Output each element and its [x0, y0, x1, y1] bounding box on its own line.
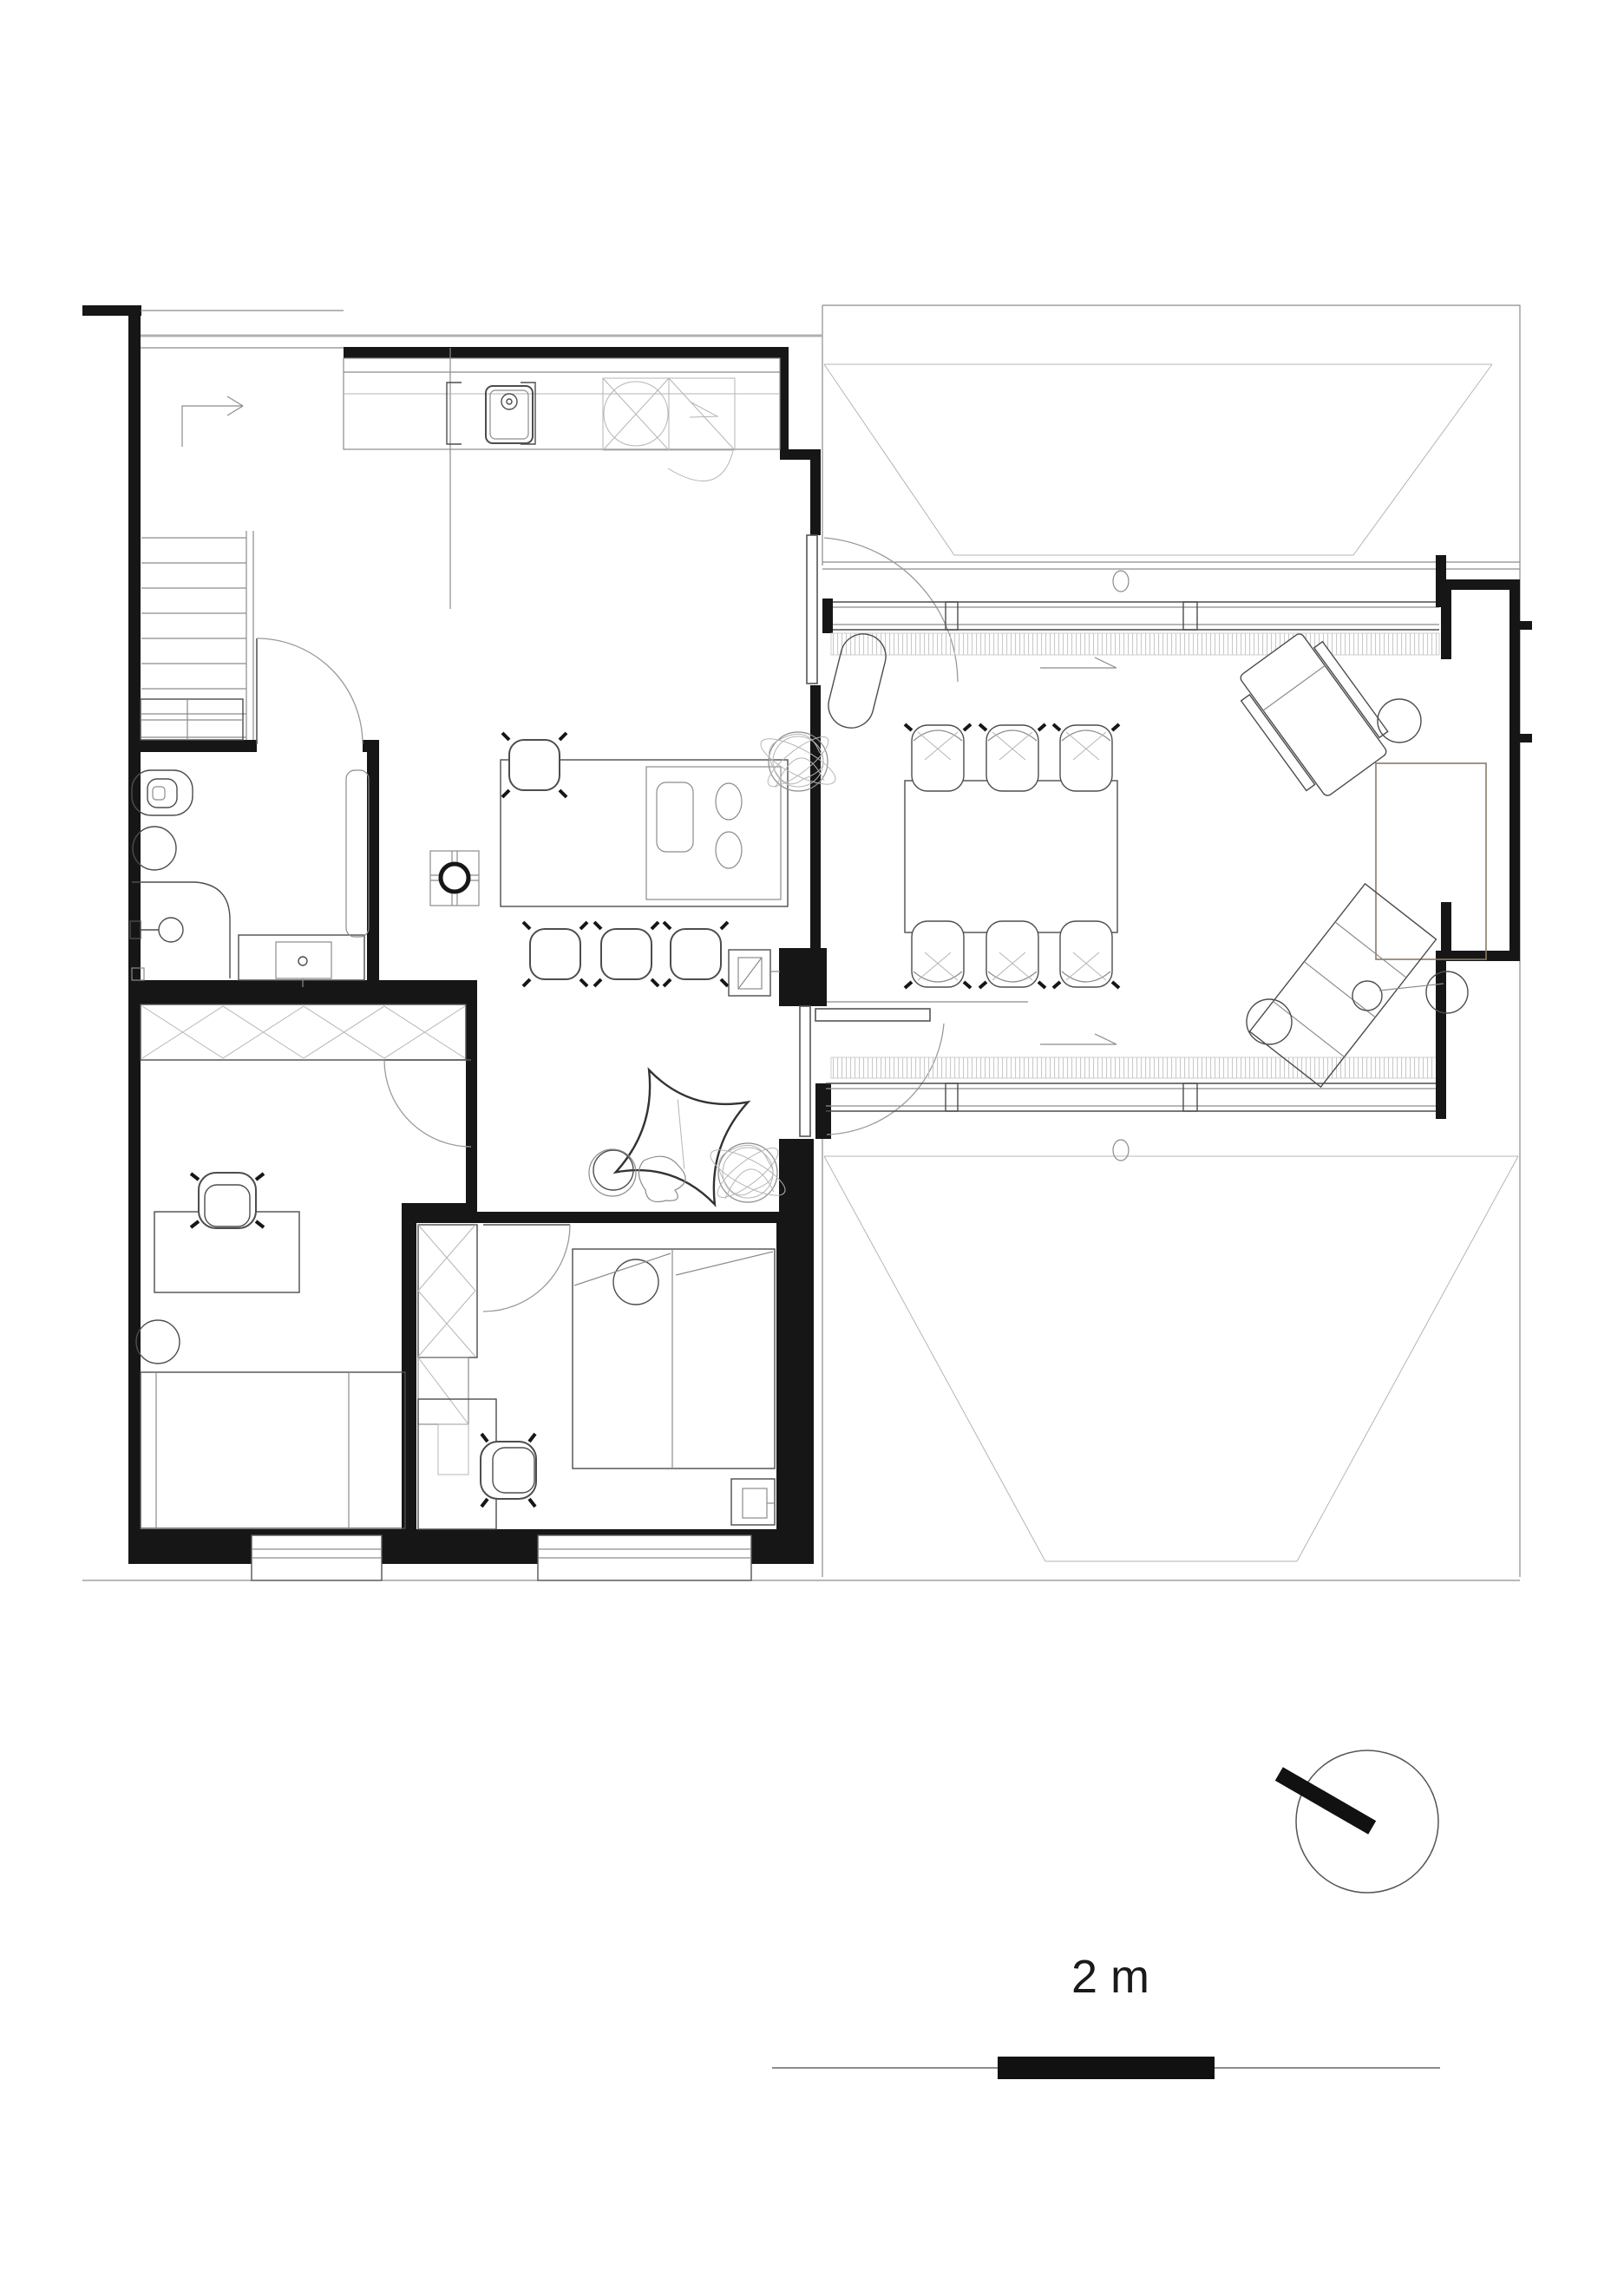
- cooktop-panel: [646, 767, 781, 899]
- vanity: [239, 935, 364, 987]
- floor-plan-drawing: [0, 0, 1624, 2296]
- nightstand: [731, 1479, 775, 1525]
- dining-room: [822, 555, 1532, 1119]
- wall-spine-mid: [810, 685, 821, 948]
- bar-stool: [523, 922, 587, 986]
- wall-spine-upper: [780, 354, 789, 460]
- dining-chair: [1053, 921, 1119, 988]
- wall-bed1-east: [466, 992, 477, 1214]
- bedroom-1: [136, 1004, 471, 1528]
- plant: [756, 729, 841, 793]
- deck-strip-north: [831, 633, 1439, 655]
- kitchen-sink: [447, 383, 535, 444]
- bed-double: [573, 1249, 775, 1469]
- burner: [716, 832, 742, 868]
- dining-chair: [905, 921, 971, 988]
- wardrobe: [141, 1004, 466, 1060]
- terrace-door-jamb: [810, 460, 821, 535]
- armchair: [616, 1070, 748, 1204]
- burner: [716, 783, 742, 820]
- floor-drain: [1113, 571, 1129, 592]
- dining-chair: [979, 921, 1045, 988]
- window-bedroom1: [252, 1535, 382, 1580]
- bathroom: [130, 638, 369, 987]
- side-table: [1426, 971, 1468, 1013]
- faucet: [501, 394, 517, 409]
- plant: [705, 1141, 791, 1204]
- floor-lamp: [1352, 981, 1444, 1011]
- wall-bath-north: [128, 740, 257, 752]
- toilet: [132, 770, 193, 815]
- scale-bar: [772, 2057, 1440, 2079]
- dining-table: [905, 781, 1117, 932]
- bathroom-door: [257, 638, 363, 744]
- stair-direction-arrow: [182, 396, 243, 447]
- window-bedroom2: [538, 1535, 751, 1580]
- door-bedroom1: [384, 1060, 471, 1147]
- bar-stool: [502, 733, 566, 797]
- wall-bed1-bed2: [402, 1203, 416, 1529]
- sideboard: [1376, 763, 1486, 959]
- wall-east-bed2: [776, 1212, 814, 1535]
- desk-chair: [481, 1434, 536, 1507]
- slide-arrow: [1040, 1034, 1116, 1044]
- planter: [589, 1149, 636, 1196]
- wardrobe: [418, 1225, 477, 1475]
- kitchen: [344, 358, 788, 986]
- shower: [130, 882, 230, 980]
- door-bedroom2: [483, 1225, 570, 1312]
- bedroom-2: [418, 1225, 775, 1529]
- bay-niche: [1436, 555, 1532, 1119]
- dining-chair: [905, 724, 971, 791]
- wall-entry-jamb: [779, 948, 827, 1006]
- lounge-chair: [1250, 884, 1437, 1087]
- shower-head: [159, 918, 183, 942]
- staircase: [141, 348, 450, 740]
- burner: [657, 782, 693, 852]
- deck-strip-south: [831, 1057, 1441, 1078]
- north-indicator: [1275, 1750, 1438, 1893]
- dining-chair: [1053, 724, 1119, 791]
- wall-kitchen-north: [344, 347, 789, 358]
- bar-stool: [594, 922, 658, 986]
- window-band-north: [822, 599, 1439, 633]
- bedside-lamp: [136, 1320, 180, 1364]
- pillow: [613, 1259, 658, 1305]
- faucet: [298, 957, 307, 965]
- tall-cabinet: [346, 770, 369, 937]
- kitchen-counter: [344, 358, 780, 449]
- wall-bed2-north: [402, 1212, 779, 1223]
- bed-double: [141, 1372, 405, 1528]
- floor-drain: [1113, 1140, 1129, 1161]
- window-band-south: [826, 1083, 1441, 1111]
- slide-arrow: [1040, 657, 1116, 668]
- side-table: [1378, 699, 1421, 742]
- dining-chair: [979, 724, 1045, 791]
- stove-flue: [430, 851, 479, 906]
- desk-chair: [191, 1173, 264, 1228]
- electrical-panel: [729, 950, 780, 996]
- bar-stool: [664, 922, 728, 986]
- scale-label: 2 m: [1024, 1950, 1197, 2004]
- hall-closet: [141, 699, 243, 740]
- south-terrace-canopy: [824, 1002, 1518, 1561]
- north-terrace-canopy: [822, 364, 1520, 592]
- floor-plan-sheet: 2 m: [0, 0, 1624, 2296]
- hall: [589, 950, 790, 1205]
